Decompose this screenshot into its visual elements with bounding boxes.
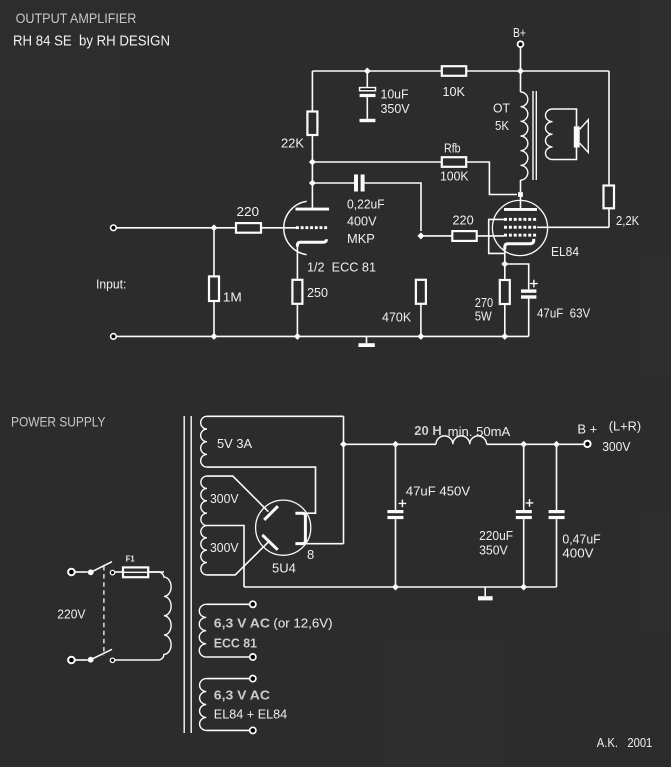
svg-text:min. 50mA: min. 50mA (448, 424, 511, 439)
svg-text:1/2 ECC 81: 1/2 ECC 81 (307, 260, 376, 275)
svg-text:MKP: MKP (347, 231, 375, 246)
svg-text:6,3 V AC: 6,3 V AC (214, 688, 271, 703)
svg-text:250: 250 (307, 285, 328, 300)
svg-text:400V: 400V (562, 546, 593, 561)
svg-text:220: 220 (453, 213, 474, 228)
svg-text:5V 3A: 5V 3A (217, 436, 252, 451)
svg-text:(L+R): (L+R) (609, 419, 641, 434)
svg-text:47uF 63V: 47uF 63V (537, 305, 590, 320)
svg-text:350V: 350V (381, 101, 410, 116)
svg-text:Rfb: Rfb (444, 141, 461, 156)
svg-text:0,47uF: 0,47uF (562, 532, 600, 547)
svg-text:2,2K: 2,2K (616, 213, 639, 228)
svg-text:300V: 300V (210, 491, 239, 506)
svg-text:470K: 470K (382, 310, 412, 325)
svg-text:10uF: 10uF (381, 86, 409, 101)
svg-text:100K: 100K (440, 169, 469, 184)
svg-text:220uF: 220uF (479, 528, 513, 543)
svg-text:8: 8 (307, 547, 314, 562)
svg-text:10K: 10K (443, 84, 466, 99)
svg-text:A.K. 2001: A.K. 2001 (597, 735, 653, 750)
svg-text:350V: 350V (479, 543, 508, 558)
svg-text:F1: F1 (126, 554, 135, 564)
svg-text:220: 220 (237, 204, 260, 219)
svg-text:400V: 400V (347, 213, 377, 228)
svg-text:300V: 300V (210, 540, 239, 555)
svg-text:220V: 220V (57, 607, 85, 622)
svg-text:B +: B + (577, 422, 597, 437)
svg-text:5U4: 5U4 (272, 561, 296, 576)
svg-text:EL84 + EL84: EL84 + EL84 (214, 707, 287, 722)
svg-text:OT: OT (493, 101, 510, 116)
svg-text:5W: 5W (475, 309, 493, 324)
svg-text:RH 84 SE by RH DESIGN: RH 84 SE by RH DESIGN (13, 33, 170, 50)
svg-text:B+: B+ (513, 25, 526, 40)
svg-text:0,22uF: 0,22uF (347, 196, 385, 211)
svg-text:ECC 81: ECC 81 (214, 636, 257, 651)
svg-text:6,3 V AC: 6,3 V AC (214, 616, 271, 631)
svg-text:47uF 450V: 47uF 450V (406, 484, 471, 499)
svg-text:300V: 300V (602, 439, 630, 454)
svg-text:Input:: Input: (96, 277, 126, 292)
svg-text:POWER SUPPLY: POWER SUPPLY (11, 414, 106, 429)
svg-text:22K: 22K (281, 136, 304, 151)
svg-text:20 H: 20 H (414, 423, 441, 438)
svg-text:(or 12,6V): (or 12,6V) (273, 617, 332, 631)
svg-text:1M: 1M (223, 289, 242, 304)
svg-text:EL84: EL84 (551, 244, 579, 259)
svg-text:OUTPUT AMPLIFIER: OUTPUT AMPLIFIER (16, 11, 137, 26)
svg-text:5K: 5K (495, 118, 509, 133)
